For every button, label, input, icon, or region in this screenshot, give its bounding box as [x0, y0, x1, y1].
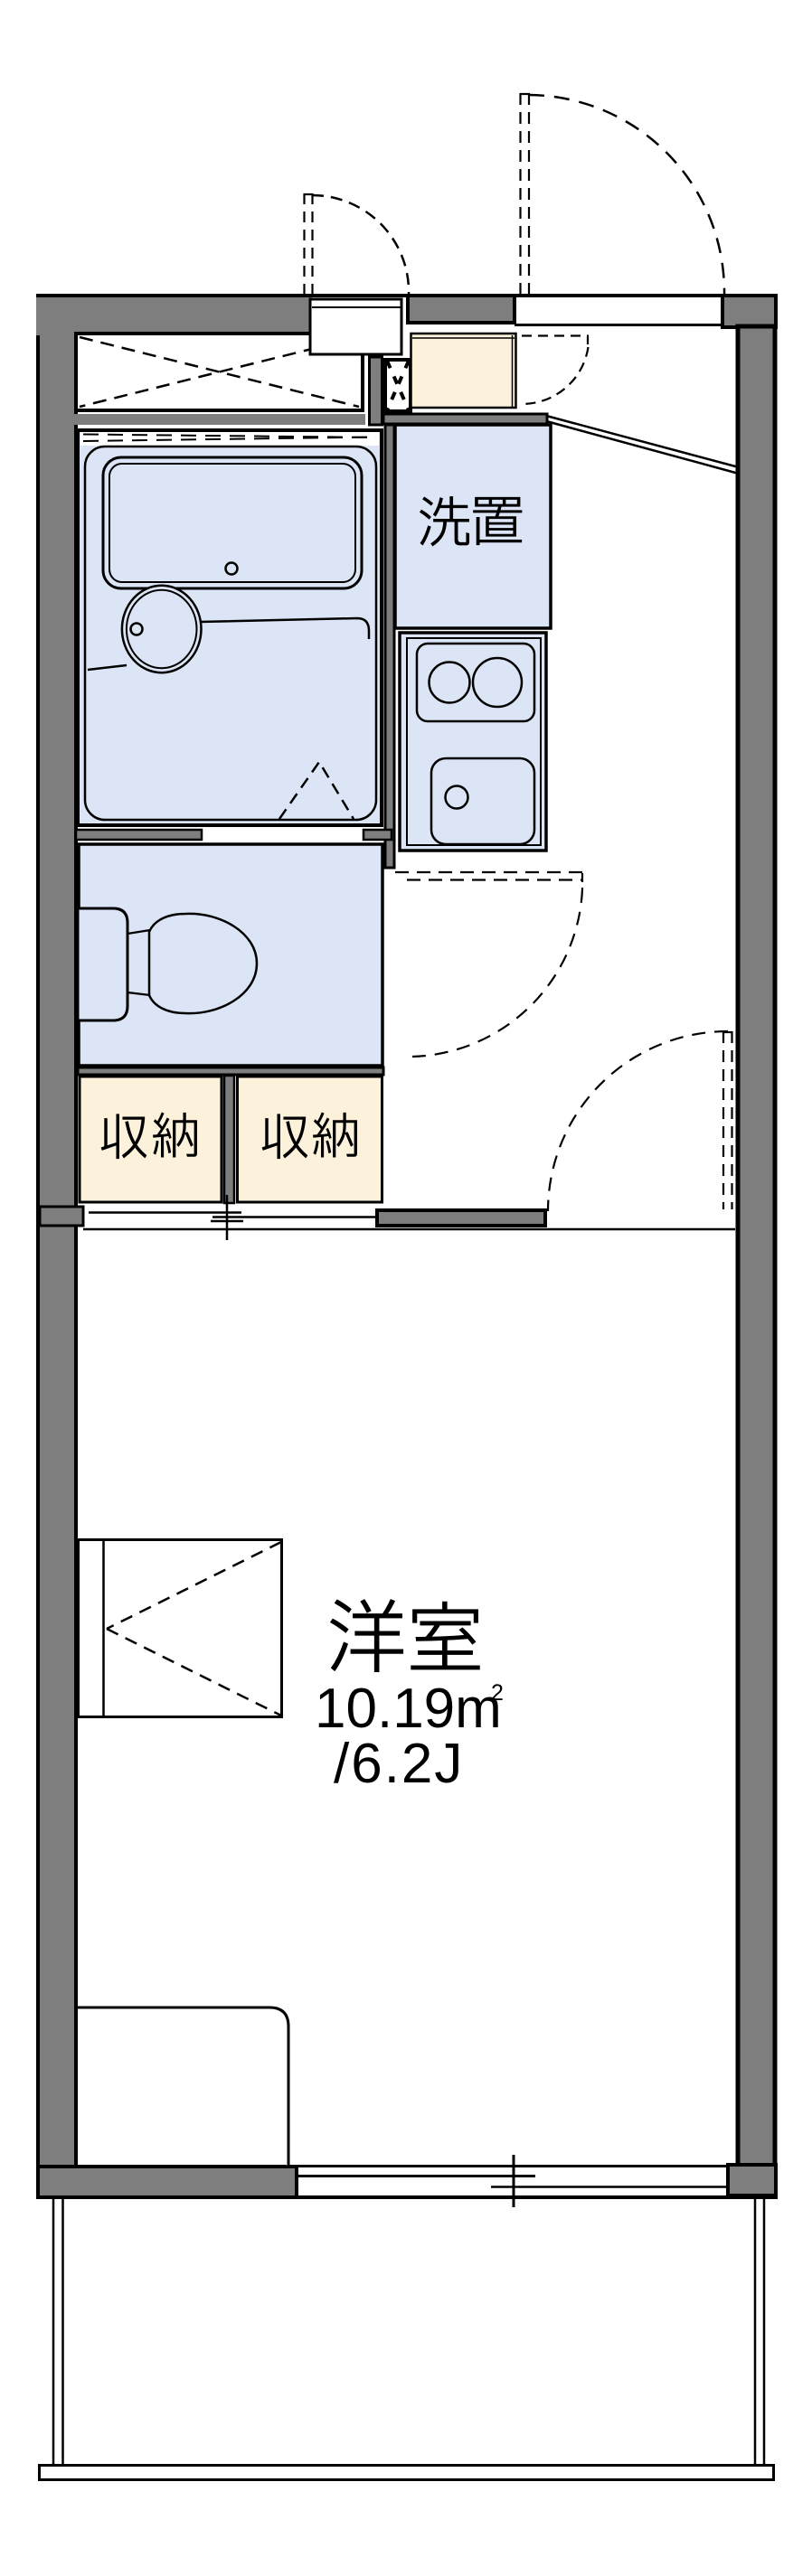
svg-text:2: 2 — [491, 1680, 504, 1706]
svg-text:10.19m: 10.19m — [315, 1678, 502, 1740]
svg-text:/6.2J: /6.2J — [334, 1733, 464, 1795]
